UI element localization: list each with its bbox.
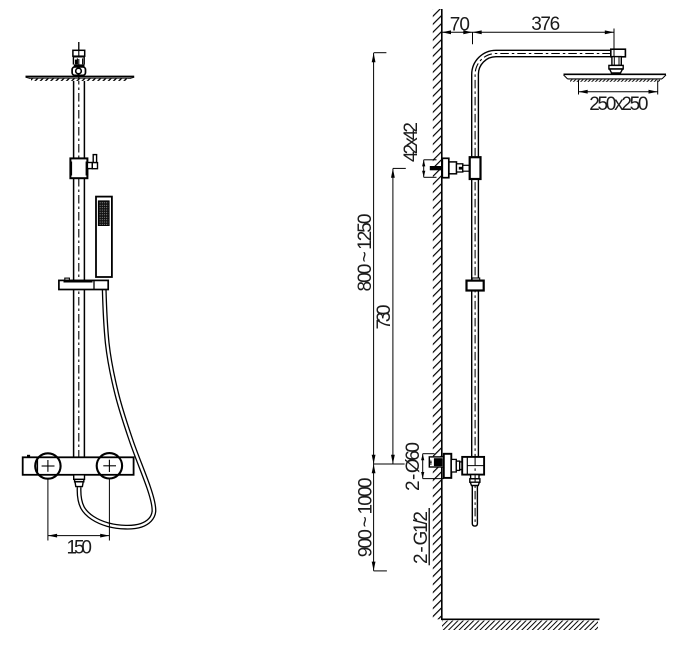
svg-text:250x250: 250x250 [589,94,648,115]
svg-text:42x42: 42x42 [401,122,422,162]
svg-text:70: 70 [450,14,470,35]
svg-text:376: 376 [531,14,560,35]
svg-text:730: 730 [374,305,395,330]
svg-text:800 ~ 1250: 800 ~ 1250 [355,214,376,292]
svg-text:2 - Ø60: 2 - Ø60 [403,442,424,491]
svg-text:900 ~ 1000: 900 ~ 1000 [356,478,377,558]
svg-text:150: 150 [67,537,93,558]
